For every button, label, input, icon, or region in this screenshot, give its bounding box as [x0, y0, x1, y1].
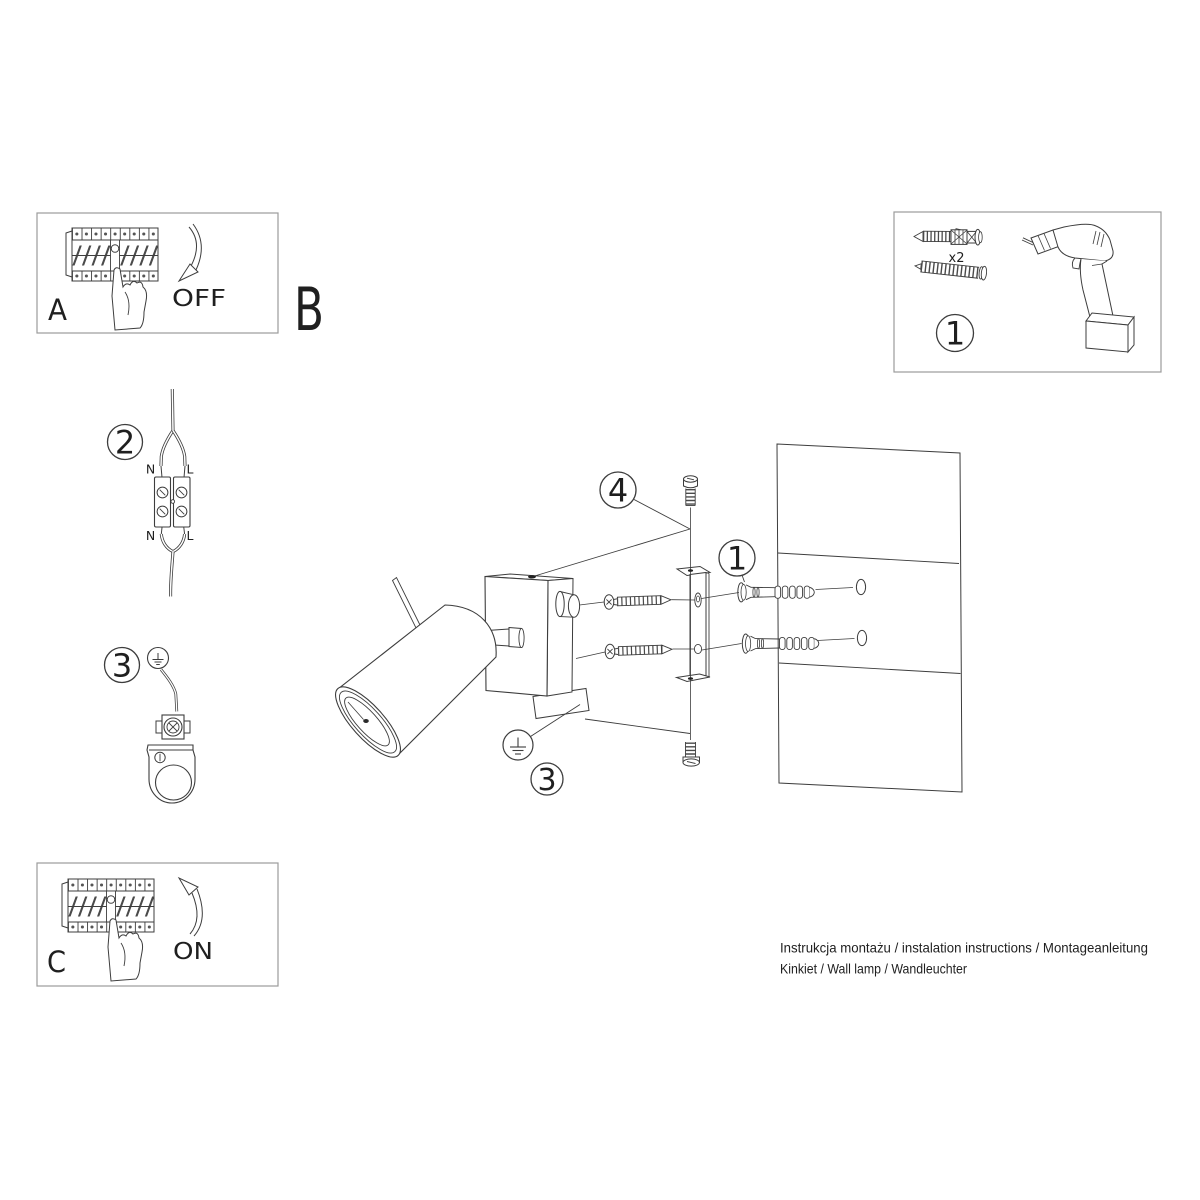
svg-text:3: 3	[537, 763, 556, 798]
terminal-label-l-bottom: L	[187, 528, 194, 543]
plate-top-screw-hole	[528, 575, 536, 578]
bracket-screw-hole-top	[688, 569, 693, 572]
terminal-label-n-top: N	[146, 462, 155, 477]
svg-text:2: 2	[115, 424, 135, 462]
footer-line-2: Kinkiet / Wall lamp / Wandleuchter	[780, 962, 967, 977]
wall-hole-top	[856, 579, 865, 594]
wood-screw-bottom	[605, 644, 672, 658]
callout-2: 2	[108, 424, 143, 462]
ground-symbol-icon	[148, 648, 169, 669]
terminal-label-l-top: L	[187, 462, 194, 477]
wall-hole-bottom	[857, 630, 866, 645]
lamp-lens-center	[363, 719, 369, 723]
instruction-sheet-page: A OFF B x2	[0, 0, 1200, 1200]
svg-text:4: 4	[608, 472, 628, 510]
wall	[777, 444, 962, 792]
mounting-bracket	[677, 567, 711, 682]
wall-plug-with-screw-icon	[914, 229, 982, 245]
section-letter-b: B	[294, 275, 324, 345]
bracket-screw-hole-bottom	[688, 677, 693, 680]
machine-screw-top	[684, 476, 698, 506]
panel-letter-c: C	[47, 945, 66, 979]
lamp-spot-head	[326, 605, 496, 766]
callout-1-assembly: 1	[719, 540, 755, 583]
callout-3: 3	[105, 647, 140, 685]
panel-a-power-off: A OFF	[37, 213, 278, 333]
wall-lamp	[326, 574, 589, 766]
callout-4: 4	[533, 472, 690, 577]
lamp-base-icon	[147, 745, 195, 803]
footer: Instrukcja montażu / instalation instruc…	[780, 941, 1148, 977]
footer-line-1: Instrukcja montażu / instalation instruc…	[780, 941, 1148, 956]
machine-screw-bottom	[683, 742, 700, 766]
ground-symbol-assembly	[503, 730, 533, 760]
panel-c-power-on: C ON	[37, 863, 278, 986]
callout-1-tools: 1	[937, 315, 974, 353]
arrow-off-icon	[179, 224, 201, 281]
step-ground-detail: 3	[105, 647, 196, 804]
assembly-exploded-view: 1	[326, 444, 962, 798]
callout-3-assembly: 3	[531, 763, 563, 798]
panel-tools: x2 1	[894, 212, 1161, 372]
instruction-drawing: A OFF B x2	[0, 0, 1200, 1200]
panel-letter-a: A	[48, 293, 67, 327]
step-wiring: 2	[108, 389, 194, 597]
label-on: ON	[173, 939, 213, 965]
label-off: OFF	[172, 286, 226, 312]
lamp-cable-rod	[393, 578, 421, 630]
terminal-label-n-bottom: N	[146, 528, 155, 543]
ground-terminal-icon	[156, 715, 190, 739]
wood-screw-top	[604, 595, 671, 609]
svg-text:1: 1	[945, 315, 965, 353]
svg-text:3: 3	[112, 647, 132, 685]
arrow-on-icon	[179, 878, 202, 936]
drill-icon	[1022, 224, 1134, 352]
svg-text:1: 1	[727, 540, 747, 578]
wire-connector-icon	[155, 389, 191, 597]
